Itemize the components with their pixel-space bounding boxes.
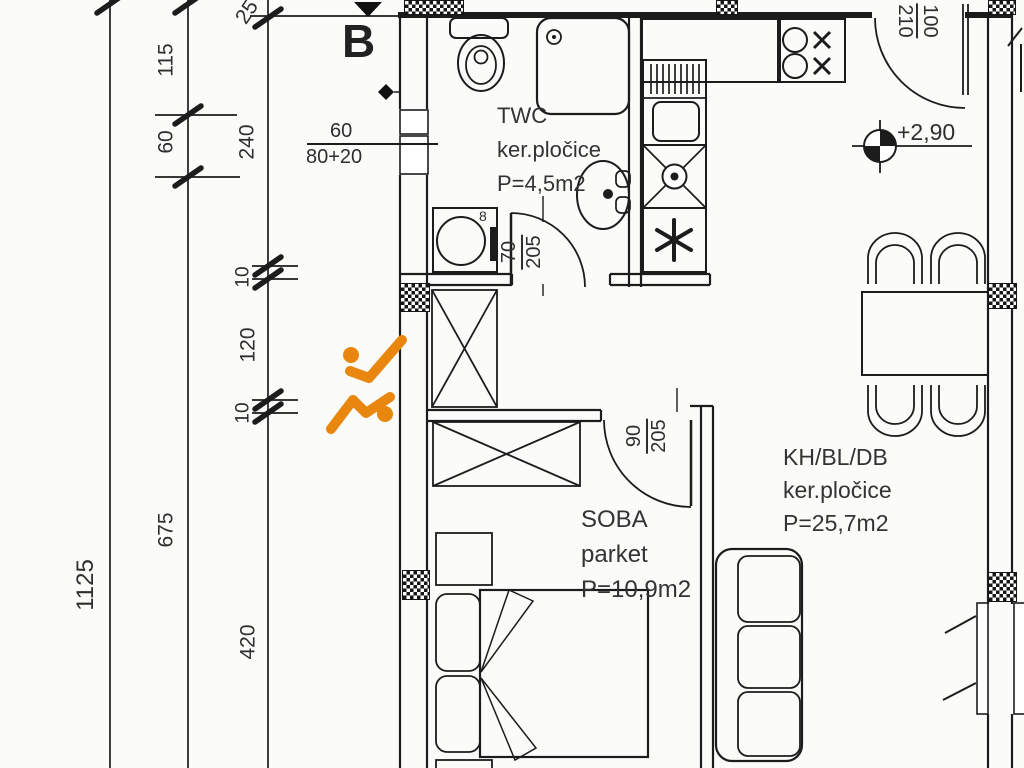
dining-set [862,233,988,436]
room-name: TWC [497,99,601,133]
floor-plan-canvas: 1125 115 60 675 25 240 10 120 10 420 B 6… [0,0,1024,768]
blanket-fold [481,590,533,672]
wall-hatch [716,0,738,15]
connection-diamond [378,84,394,100]
wall-hatch [400,283,430,312]
bed [480,590,648,757]
wall-hatch [988,283,1017,309]
nightstand [436,533,492,585]
room-area: P=4,5m2 [497,167,601,201]
room-label-soba: SOBA parket P=10,9m2 [581,502,691,607]
right-window [943,603,1024,714]
dim-label-120: 120 [238,327,259,362]
doors [511,4,1022,507]
door-height: 205 [646,418,671,453]
wall-hatch [988,572,1017,602]
watermark-logo [331,340,402,429]
dining-table [862,292,988,375]
boiler-symbol [657,220,691,260]
room-name: SOBA [581,502,691,537]
wall-hatch [402,570,430,600]
room-floor: ker.pločice [783,474,892,507]
wardrobes [432,290,580,486]
dim-label-10b: 10 [234,402,253,423]
room-floor: ker.pločice [497,133,601,167]
washer-label: 8 [479,209,487,223]
dim-label-420: 420 [238,624,259,659]
dim-label-10: 10 [234,266,253,287]
door-width: 90 [623,425,646,447]
left-window [397,109,430,175]
room-area: P=10,9m2 [581,572,691,607]
window-width-label: 60 [330,121,352,141]
kitchen-units [642,19,845,272]
room-area: P=25,7m2 [783,507,892,540]
section-label: B [342,18,375,64]
sofa [716,549,802,761]
washing-machine-drum [437,217,485,265]
window-parapet-label: 80+20 [306,147,362,167]
bathroom-door-dim: 70 205 [498,234,546,269]
entry-door-dim: 100 210 [893,3,941,38]
door-height: 210 [893,3,918,38]
pillow [436,676,480,752]
door-width: 100 [918,4,941,37]
soba-door-dim: 90 205 [623,418,671,453]
kitchen-sink [653,102,699,141]
basin-drain [603,189,613,199]
room-floor: parket [581,537,691,572]
dim-label-240: 240 [237,124,258,159]
window-open-mark [945,616,976,633]
door-width: 70 [498,241,521,263]
room-name: KH/BL/DB [783,441,892,474]
elevation-label: +2,90 [897,121,955,144]
room-label-living: KH/BL/DB ker.pločice P=25,7m2 [783,441,892,540]
pillow [436,594,480,671]
sofa-cushion [738,692,800,756]
burner [783,28,807,52]
sofa-outline [716,549,802,761]
dim-label-675: 675 [156,512,177,547]
sofa-cushion [738,626,800,688]
burner [783,54,807,78]
sofa-cushion [738,556,800,622]
window-open-mark [943,683,976,700]
wall-hatch [404,0,464,15]
nightstand [436,760,492,768]
dim-label-60: 60 [156,130,177,153]
blanket-fold [481,678,536,760]
room-label-twc: TWC ker.pločice P=4,5m2 [497,99,601,201]
dim-label-115: 115 [156,43,177,76]
wall-hatch [988,0,1016,15]
dim-label-1125: 1125 [74,559,98,611]
door-height: 205 [521,234,546,269]
